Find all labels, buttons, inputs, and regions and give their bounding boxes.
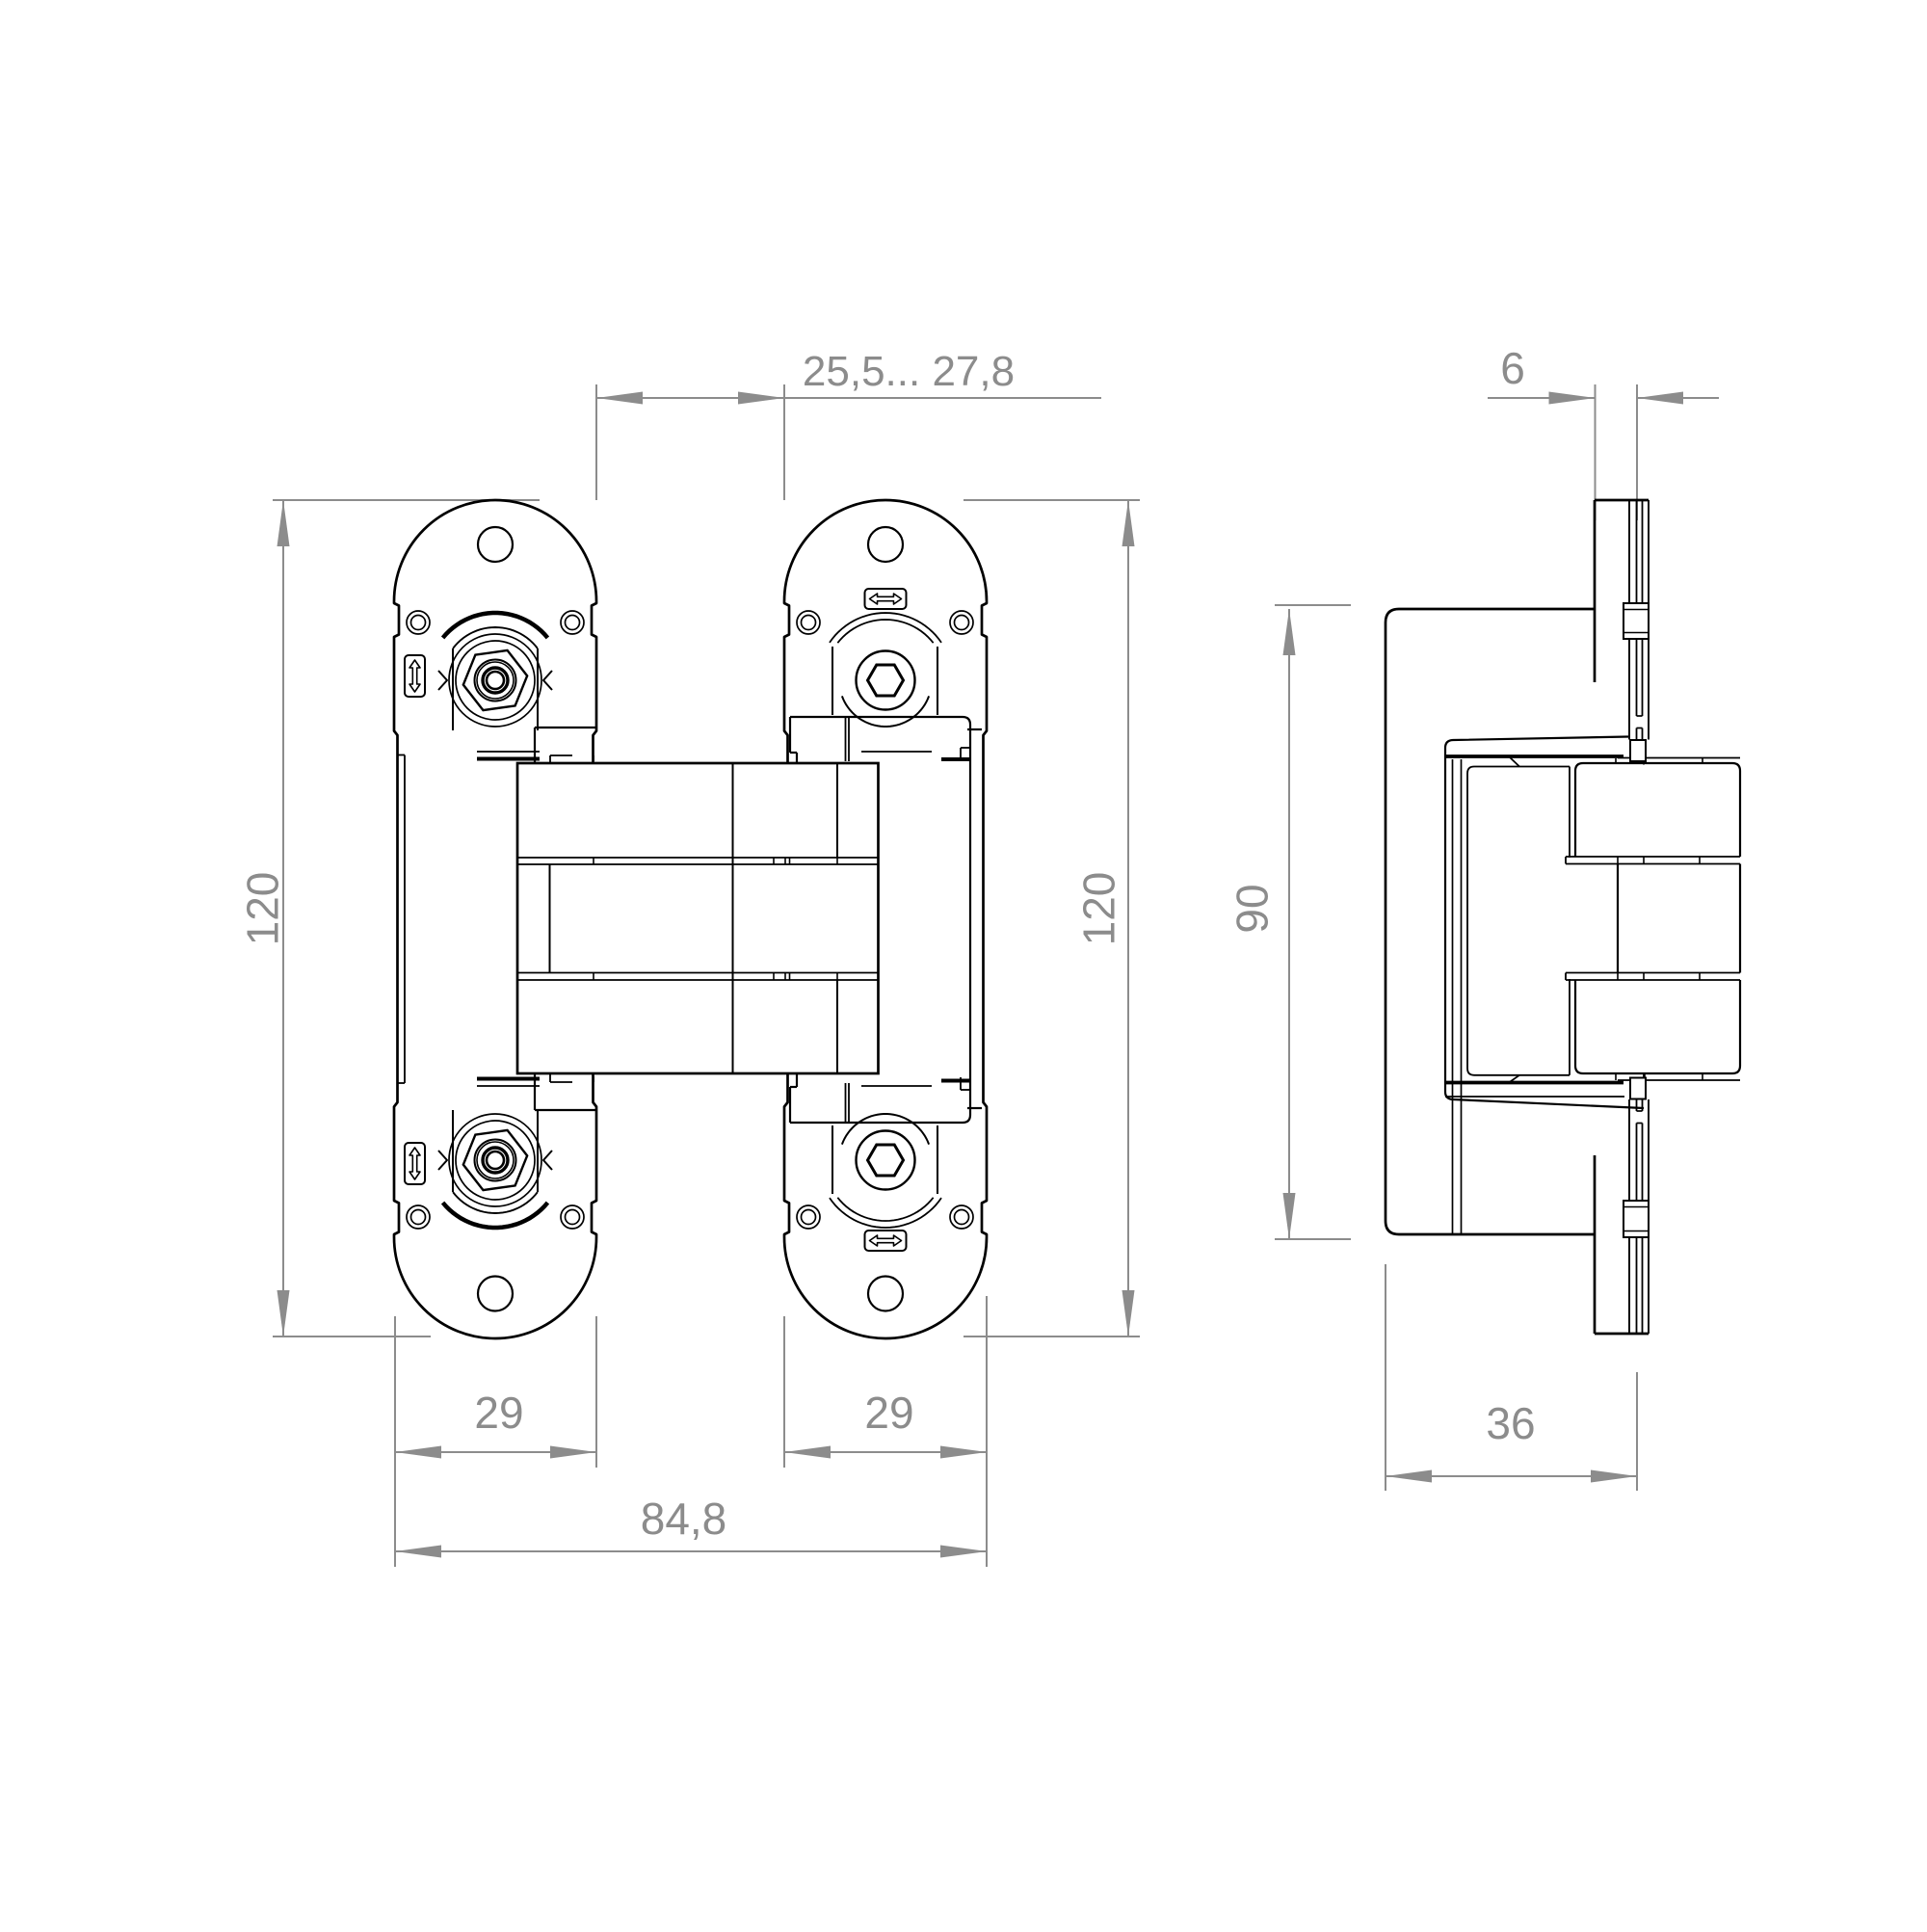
- svg-text:25,5... 27,8: 25,5... 27,8: [803, 348, 1015, 395]
- svg-text:6: 6: [1500, 343, 1525, 393]
- svg-text:29: 29: [864, 1388, 913, 1438]
- svg-text:84,8: 84,8: [641, 1494, 727, 1544]
- svg-text:29: 29: [474, 1388, 523, 1438]
- svg-text:120: 120: [238, 872, 288, 946]
- svg-text:90: 90: [1227, 884, 1278, 933]
- svg-text:120: 120: [1074, 872, 1124, 946]
- svg-text:36: 36: [1486, 1398, 1535, 1448]
